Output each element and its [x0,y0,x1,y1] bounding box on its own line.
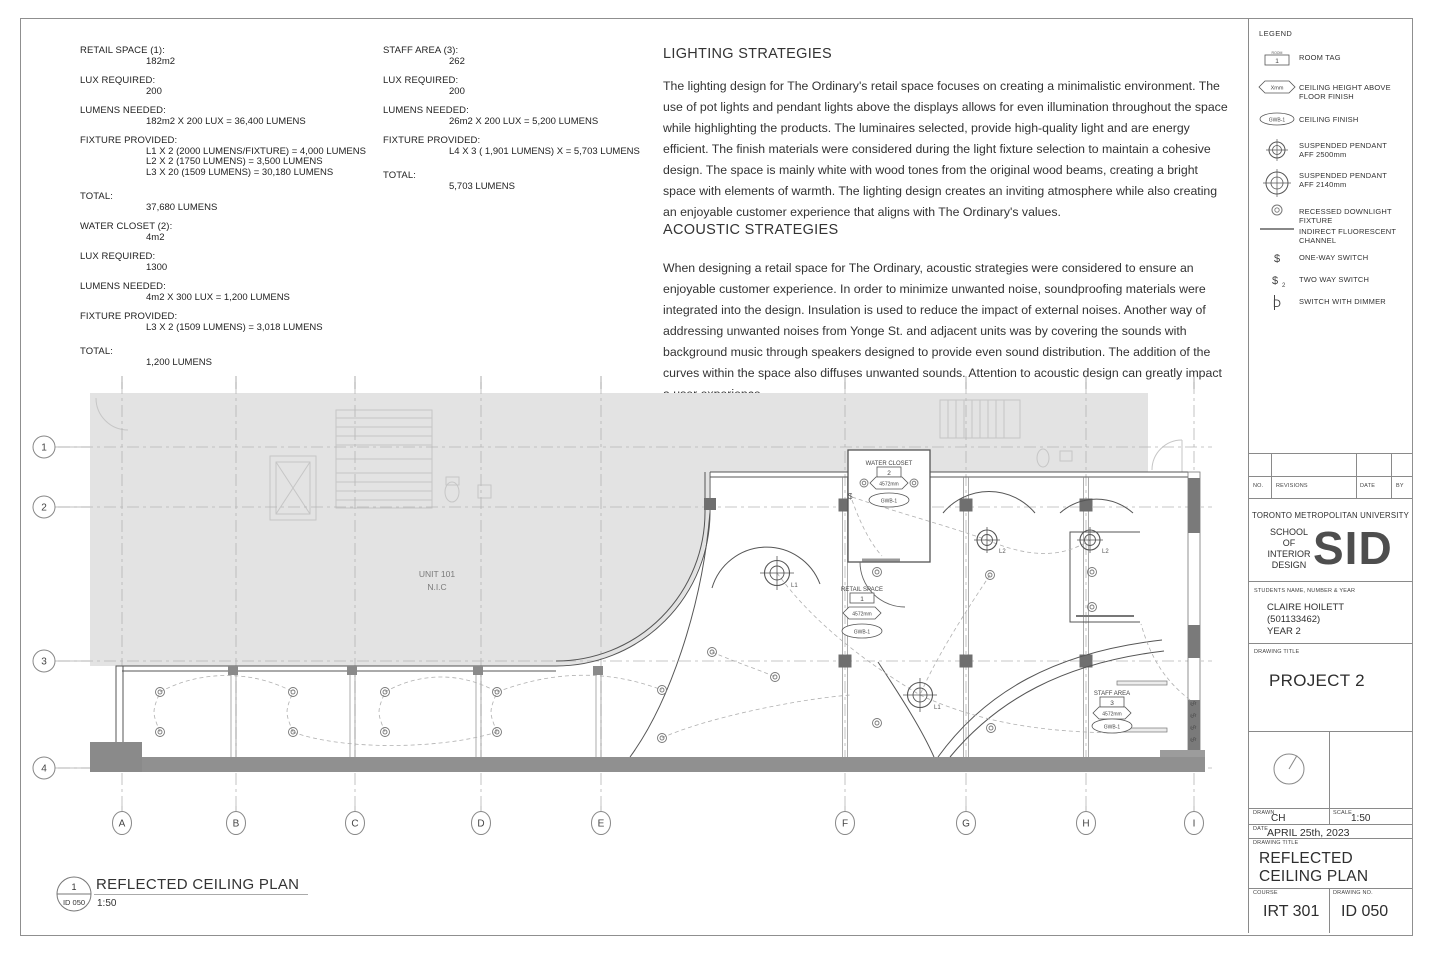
calc-value: 26m2 X 200 LUX = 5,200 LUMENS [449,117,693,128]
legend-item-dimmer-switch: D SWITCH WITH DIMMER [1255,293,1409,311]
calc-label: TOTAL: [80,347,390,358]
svg-text:3: 3 [1110,700,1114,707]
lighting-strategies-title: LIGHTING STRATEGIES [663,46,832,62]
calc-value: 4m2 X 300 LUX = 1,200 LUMENS [146,293,390,304]
corridor-corner [1148,393,1205,472]
revisions-col-revisions: REVISIONS [1276,483,1308,489]
course-value: IRT 301 [1263,903,1319,921]
students-label: STUDENTS NAME, NUMBER & YEAR [1254,588,1355,594]
two-way-switch-icon: $ 2 [1255,271,1299,289]
suspended-pendants: L1 L1 L2 L2 [760,527,1109,712]
svg-text:GWB-1: GWB-1 [1269,118,1286,124]
legend-label: ONE-WAY SWITCH [1299,249,1368,262]
retail-space-calcs: RETAIL SPACE (1):182m2 LUX REQUIRED:200 … [80,46,390,222]
svg-text:$: $ [1272,275,1278,287]
calc-label: WATER CLOSET (2): [80,222,390,233]
grid-ticks [122,376,1194,389]
calc-value: 5,703 LUMENS [449,182,693,193]
svg-text:L1: L1 [934,705,941,711]
school-line: DESIGN [1263,560,1315,571]
legend-title: LEGEND [1259,29,1292,38]
revisions-col-no: NO. [1253,483,1263,489]
calc-value: L3 X 20 (1509 LUMENS) = 30,180 LUMENS [146,168,390,179]
svg-text:H: H [1082,819,1089,830]
legend-label: RECESSED DOWNLIGHT FIXTURE [1299,203,1409,225]
switch-symbol: $ [848,492,853,501]
svg-text:1: 1 [41,443,47,454]
view-title-rule [94,894,308,895]
view-scale: 1:50 [97,898,116,909]
legend-item-pendant-2140: SUSPENDED PENDANT AFF 2140mm [1255,167,1409,199]
calc-label: FIXTURE PROVIDED: [80,312,390,323]
view-title-text: REFLECTED CEILING PLAN [96,876,299,893]
calc-value: L4 X 3 ( 1,901 LUMENS) X = 5,703 LUMENS [449,147,693,158]
room-tag-staff-area: STAFF AREA 3 4572mm GWB-1 [1092,691,1132,733]
project-title: PROJECT 2 [1269,671,1365,691]
course-label: COURSE [1253,890,1278,896]
legend-label: SWITCH WITH DIMMER [1299,293,1386,306]
legend-label: ROOM TAG [1299,49,1341,62]
svg-text:4: 4 [41,764,47,775]
svg-text:B: B [233,819,240,830]
legend-item-room-tag: ROOM 1 ROOM TAG [1255,49,1409,69]
ceiling-height-icon: Xmm [1255,79,1299,95]
date-label: DATE [1253,826,1268,832]
pendant-l2: L2 [1077,527,1109,555]
svg-text:D: D [477,819,484,830]
svg-text:F: F [842,819,848,830]
north-arrow-icon [1271,751,1307,787]
calc-label: LUX REQUIRED: [80,252,390,263]
calc-value: 182m2 X 200 LUX = 36,400 LUMENS [146,117,390,128]
water-closet-calcs: WATER CLOSET (2):4m2 LUX REQUIRED:1300 L… [80,222,390,377]
legend-item-one-way-switch: $ ONE-WAY SWITCH [1255,249,1409,265]
revisions-col-by: BY [1396,483,1404,489]
nic-shaded-region [90,393,1205,666]
grid-column-bubbles: A B C D E F G H I [113,806,1204,835]
school-line: SCHOOL [1263,527,1315,538]
calc-label: LUMENS NEEDED: [80,106,390,117]
drawing-no-value: ID 050 [1341,903,1388,921]
lighting-strategies-body: The lighting design for The Ordinary's r… [663,76,1228,223]
suspended-pendant-large-icon [1255,167,1299,199]
svg-text:2: 2 [41,503,47,514]
svg-text:2: 2 [887,470,891,477]
right-panel: LEGEND ROOM 1 ROOM TAG Xmm CEILING HEIGH… [1248,19,1412,933]
svg-text:GWB-1: GWB-1 [854,630,871,636]
legend-label: CEILING FINISH [1299,111,1358,124]
calc-value: L2 X 2 (1750 LUMENS) = 3,500 LUMENS [146,157,390,168]
svg-text:WATER CLOSET: WATER CLOSET [866,461,913,467]
school-name: SCHOOL OF INTERIOR DESIGN [1263,527,1315,571]
legend-item-ceiling-height: Xmm CEILING HEIGHT ABOVE FLOOR FINISH [1255,79,1409,101]
legend-item-pendant-2500: SUSPENDED PENDANT AFF 2500mm [1255,137,1409,163]
svg-text:L2: L2 [999,549,1006,555]
grid-row-bubbles: 1 2 3 4 [33,436,90,779]
legend-label: SUSPENDED PENDANT AFF 2500mm [1299,137,1387,159]
svg-text:GWB-1: GWB-1 [881,499,898,505]
ceiling-plan-drawing: UNIT 101 N.I.C [25,370,1240,890]
calc-value: 200 [146,87,390,98]
svg-text:1: 1 [1275,58,1279,65]
sid-logo: SID [1313,521,1393,575]
svg-text:L1: L1 [791,583,798,589]
unit-101-label: UNIT 101 [419,569,455,579]
staff-area-calcs: STAFF AREA (3):262 LUX REQUIRED:200 LUME… [383,46,693,201]
calc-label: TOTAL: [383,171,693,182]
calc-value: L3 X 2 (1509 LUMENS) = 3,018 LUMENS [146,323,390,334]
svg-text:C: C [351,819,358,830]
student-name: CLAIRE HOILETT [1267,602,1344,613]
school-line: INTERIOR [1263,549,1315,560]
scale-label: SCALE [1333,810,1352,816]
drawn-value: CH [1271,813,1285,824]
legend-label: TWO WAY SWITCH [1299,271,1369,284]
svg-text:L2: L2 [1102,549,1109,555]
revisions-col-date: DATE [1360,483,1375,489]
drawing-no-label: DRAWING NO. [1333,890,1373,896]
drawing-title-label: DRAWING TITLE [1253,840,1298,846]
legend-label: INDIRECT FLUORESCENT CHANNEL [1299,223,1396,245]
dimmer-switch-icon: D [1255,293,1299,311]
suspended-pendant-small-icon [1255,137,1299,163]
legend-item-indirect-fluorescent: INDIRECT FLUORESCENT CHANNEL [1255,223,1409,245]
view-number: 1 [71,882,76,892]
ceiling-finish-icon: GWB-1 [1255,111,1299,127]
university-name: TORONTO METROPOLITAN UNIVERSITY [1249,511,1412,520]
calc-label: TOTAL: [80,192,390,203]
calc-label: FIXTURE PROVIDED: [80,136,390,147]
drawing-sheet: RETAIL SPACE (1):182m2 LUX REQUIRED:200 … [0,0,1430,953]
svg-text:ROOM: ROOM [1272,51,1283,55]
legend-item-ceiling-finish: GWB-1 CEILING FINISH [1255,111,1409,127]
svg-text:1: 1 [860,596,864,603]
calc-value: 37,680 LUMENS [146,203,390,214]
svg-text:$: $ [1274,253,1280,265]
calc-label: STAFF AREA (3): [383,46,693,57]
calc-label: FIXTURE PROVIDED: [383,136,693,147]
student-year: YEAR 2 [1267,626,1301,637]
school-line: OF [1263,538,1315,549]
student-number: (501133462) [1267,614,1320,625]
drawing-title-label: DRAWING TITLE [1254,649,1299,655]
calc-value: 182m2 [146,57,390,68]
svg-text:4572mm: 4572mm [879,482,898,488]
calc-value: 1300 [146,263,390,274]
legend-label: CEILING HEIGHT ABOVE FLOOR FINISH [1299,79,1391,101]
calc-label: LUMENS NEEDED: [80,282,390,293]
calc-value: 4m2 [146,233,390,244]
drawing-title-value: REFLECTED CEILING PLAN [1259,850,1409,886]
one-way-switch-icon: $ [1255,249,1299,265]
svg-text:2: 2 [1282,283,1286,289]
svg-text:Xmm: Xmm [1271,86,1284,92]
legend-item-recessed-downlight: RECESSED DOWNLIGHT FIXTURE [1255,203,1409,225]
scale-value: 1:50 [1351,813,1370,824]
svg-text:STAFF AREA: STAFF AREA [1094,691,1130,697]
storefront-wall [90,757,1205,772]
recessed-downlight-icon [1255,203,1299,217]
svg-text:GWB-1: GWB-1 [1104,725,1121,731]
svg-text:3: 3 [41,657,47,668]
calc-label: LUMENS NEEDED: [383,106,693,117]
svg-text:I: I [1193,819,1196,830]
svg-text:RETAIL SPACE: RETAIL SPACE [841,587,883,593]
view-sheet-ref: ID 050 [63,898,85,907]
svg-text:4572mm: 4572mm [852,612,871,618]
acoustic-strategies-title: ACOUSTIC STRATEGIES [663,222,838,238]
pendant-l1: L1 [760,556,798,590]
calc-label: LUX REQUIRED: [383,76,693,87]
svg-text:G: G [962,819,970,830]
svg-text:A: A [119,819,126,830]
legend-label: SUSPENDED PENDANT AFF 2140mm [1299,167,1387,189]
room-tag-icon: ROOM 1 [1255,49,1299,69]
view-title-bubble: 1 ID 050 [54,874,94,919]
svg-text:4572mm: 4572mm [1102,712,1121,718]
unit-101-nic-label: N.I.C [427,582,446,592]
legend-item-two-way-switch: $ 2 TWO WAY SWITCH [1255,271,1409,289]
calc-value: 1,200 LUMENS [146,358,390,369]
pendant-l1: L1 [903,678,941,712]
calc-label: LUX REQUIRED: [80,76,390,87]
calc-value: 200 [449,87,693,98]
indirect-fluorescent-icon [1255,223,1299,235]
svg-text:E: E [598,819,605,830]
calc-label: RETAIL SPACE (1): [80,46,390,57]
calc-value: 262 [449,57,693,68]
